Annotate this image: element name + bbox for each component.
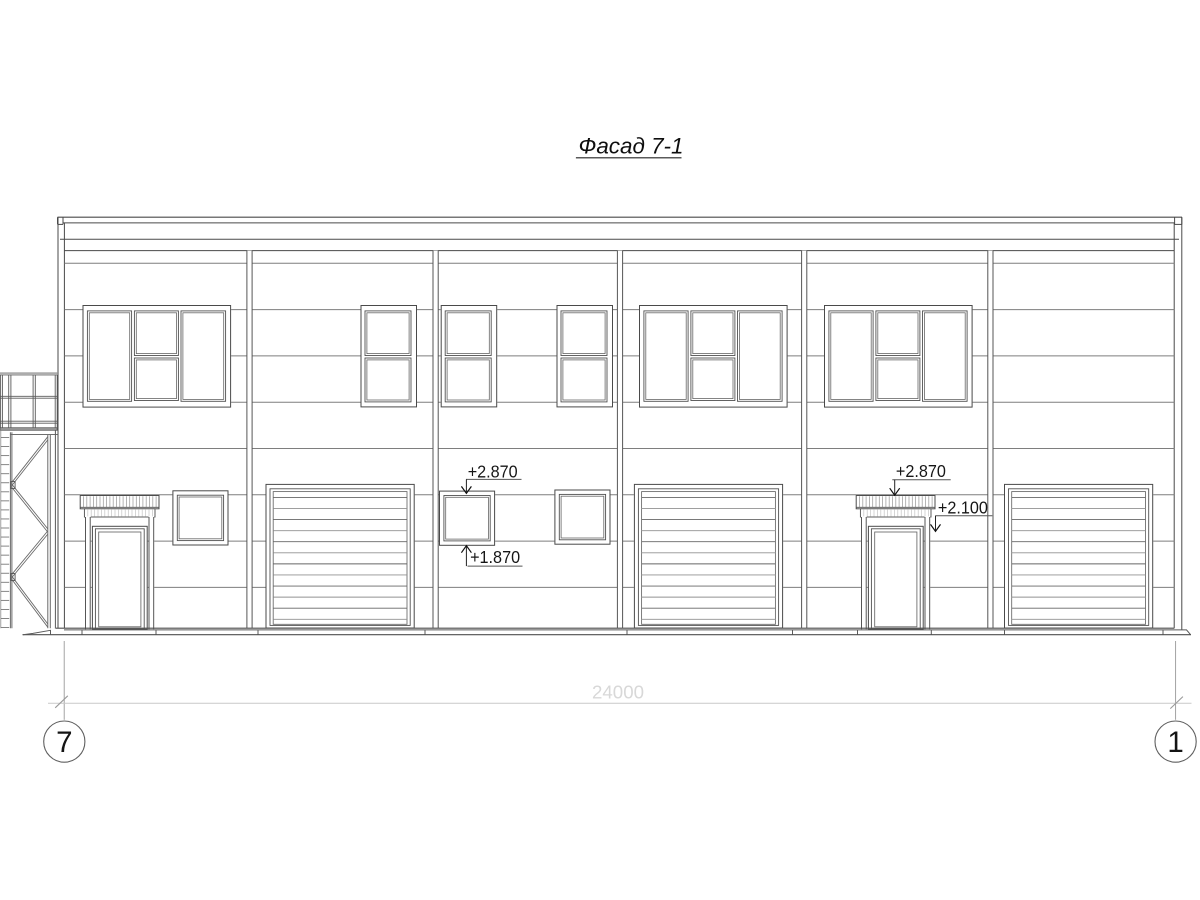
svg-text:Фасад 7-1: Фасад 7-1 [579,134,684,159]
svg-text:+1.870: +1.870 [470,547,520,567]
svg-text:+2.870: +2.870 [468,461,518,481]
svg-text:+2.100: +2.100 [938,497,988,517]
svg-text:1: 1 [1167,726,1183,759]
svg-text:24000: 24000 [592,683,644,703]
svg-text:+2.870: +2.870 [896,461,946,481]
svg-text:7: 7 [56,726,72,759]
